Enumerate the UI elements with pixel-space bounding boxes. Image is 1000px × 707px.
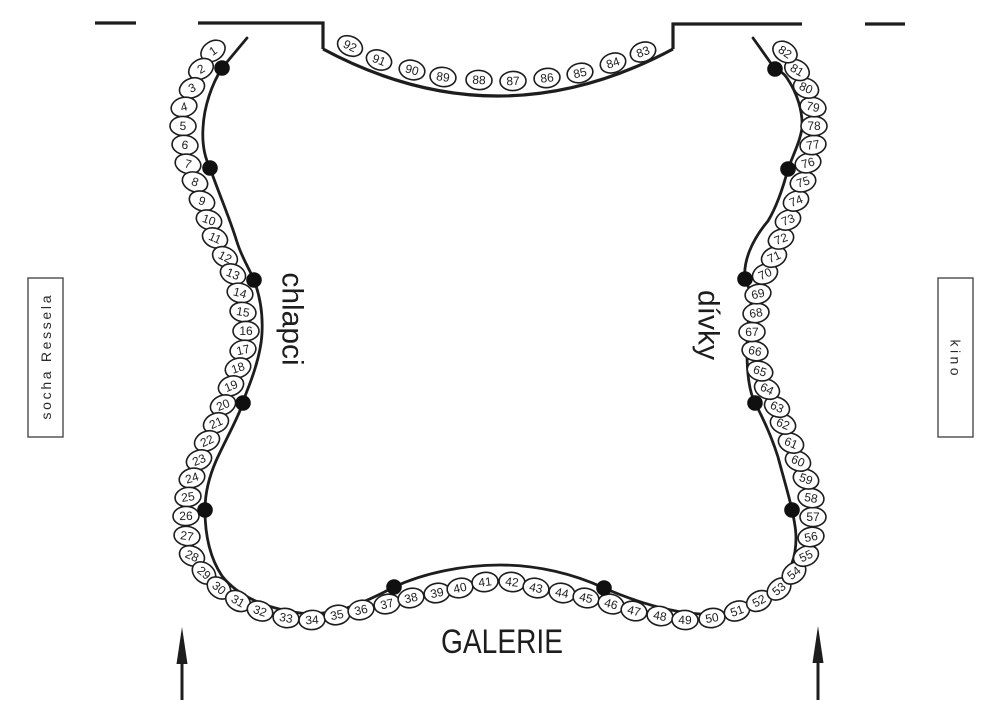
seat-number: 57 bbox=[806, 510, 820, 524]
seat-67: 67 bbox=[739, 322, 765, 342]
seat-89: 89 bbox=[429, 66, 458, 89]
pillar-5 bbox=[197, 502, 213, 518]
seat-26: 26 bbox=[173, 506, 199, 526]
pillar-9 bbox=[747, 395, 763, 411]
seat-25: 25 bbox=[174, 485, 203, 508]
seat-48: 48 bbox=[646, 604, 675, 627]
pillar-4 bbox=[235, 395, 251, 411]
pillar-1 bbox=[214, 60, 230, 76]
seat-number: 26 bbox=[179, 509, 193, 523]
seat-86: 86 bbox=[533, 67, 561, 89]
seat-40: 40 bbox=[445, 576, 475, 601]
seating-diagram: socha Ressela kino chlapci dívky GALERIE… bbox=[0, 0, 1000, 707]
seat-number: 87 bbox=[506, 74, 520, 88]
label-divky: dívky bbox=[692, 290, 725, 360]
seat-44: 44 bbox=[547, 581, 576, 605]
seat-number: 86 bbox=[540, 70, 555, 86]
seat-number: 16 bbox=[239, 324, 253, 338]
seat-number: 49 bbox=[678, 613, 692, 628]
seat-number: 34 bbox=[305, 613, 319, 628]
pillar-12 bbox=[767, 61, 783, 77]
seat-number: 88 bbox=[472, 73, 486, 88]
pillar-3 bbox=[246, 272, 262, 288]
seat-41: 41 bbox=[471, 571, 499, 593]
seat-number: 33 bbox=[278, 610, 294, 626]
seat-42: 42 bbox=[498, 571, 526, 593]
seat-78: 78 bbox=[801, 116, 827, 135]
seat-5: 5 bbox=[170, 116, 196, 136]
seat-68: 68 bbox=[742, 301, 771, 324]
pillar-10 bbox=[737, 271, 753, 287]
pillar-6 bbox=[386, 579, 402, 595]
seat-4: 4 bbox=[169, 95, 199, 120]
seat-number: 42 bbox=[505, 574, 520, 589]
seat-36: 36 bbox=[346, 598, 376, 622]
seat-66: 66 bbox=[740, 339, 769, 363]
seat-56: 56 bbox=[797, 525, 826, 549]
entrance-arrow-left bbox=[177, 627, 188, 700]
seat-number: 78 bbox=[807, 119, 821, 133]
label-galerie: GALERIE bbox=[441, 623, 563, 661]
arrow-head bbox=[177, 627, 188, 664]
seat-6: 6 bbox=[171, 134, 199, 156]
seat-50: 50 bbox=[698, 606, 727, 629]
seat-number: 89 bbox=[435, 69, 451, 85]
seat-number: 15 bbox=[235, 304, 251, 320]
seat-15: 15 bbox=[229, 300, 258, 323]
seat-16: 16 bbox=[233, 321, 259, 340]
seat-34: 34 bbox=[298, 610, 325, 631]
entrance-arrow-right bbox=[813, 626, 824, 700]
seat-number: 48 bbox=[652, 608, 668, 624]
label-chlapci: chlapci bbox=[276, 272, 309, 365]
seat-number: 67 bbox=[745, 325, 759, 339]
pillar-2 bbox=[202, 160, 218, 176]
arrow-head bbox=[813, 626, 824, 663]
seat-27: 27 bbox=[173, 525, 202, 548]
seat-57: 57 bbox=[800, 507, 826, 526]
seats-layer: 1234567891011121314151617181920212223242… bbox=[169, 32, 828, 631]
pillar-8 bbox=[784, 502, 800, 518]
seat-number: 58 bbox=[803, 490, 819, 506]
seat-number: 25 bbox=[180, 489, 196, 505]
seat-90: 90 bbox=[397, 57, 427, 82]
seat-58: 58 bbox=[796, 486, 825, 510]
seat-87: 87 bbox=[500, 71, 527, 91]
pillar-7 bbox=[596, 580, 612, 596]
seat-43: 43 bbox=[521, 576, 551, 600]
seat-number: 41 bbox=[478, 574, 493, 589]
seat-88: 88 bbox=[465, 70, 492, 91]
seat-83: 83 bbox=[627, 39, 658, 66]
seat-number: 5 bbox=[179, 119, 186, 133]
seat-49: 49 bbox=[672, 610, 699, 630]
seat-33: 33 bbox=[272, 606, 301, 629]
seat-number: 56 bbox=[803, 529, 819, 545]
seat-number: 50 bbox=[704, 610, 720, 626]
seat-number: 68 bbox=[748, 305, 764, 321]
seat-number: 77 bbox=[805, 137, 821, 153]
seat-77: 77 bbox=[799, 133, 828, 156]
pillar-11 bbox=[780, 161, 796, 177]
seat-number: 27 bbox=[179, 528, 195, 544]
kino-label: kino bbox=[948, 340, 964, 376]
